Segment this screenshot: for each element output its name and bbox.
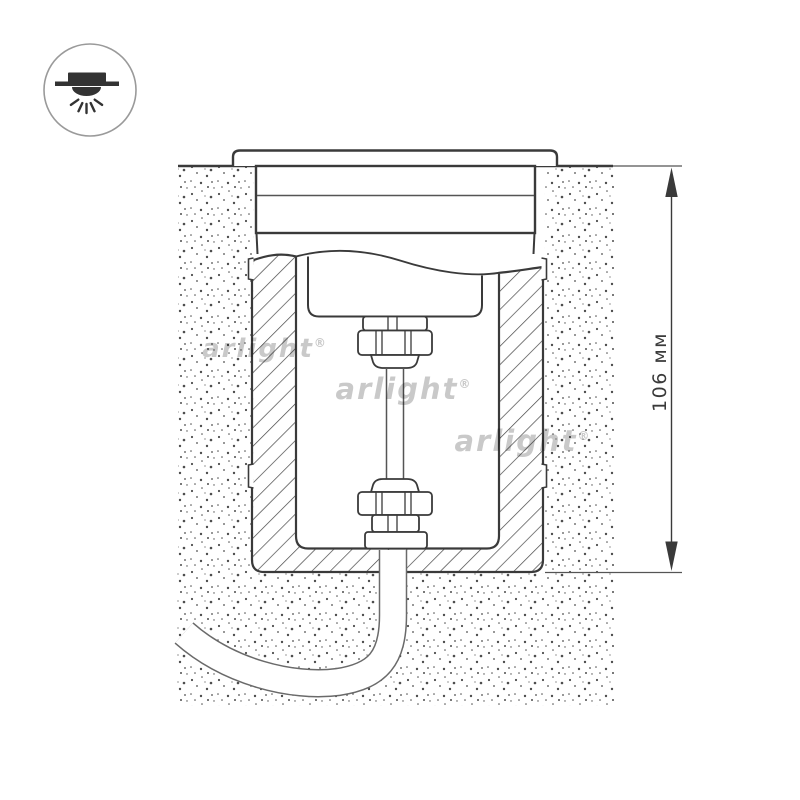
dimension-arrow-top	[665, 168, 677, 198]
soil-texture-left	[178, 167, 254, 573]
body-neck-left	[257, 233, 258, 254]
luminaire-top	[233, 151, 557, 255]
dimension: 106 мм	[649, 168, 678, 572]
soil-texture-right	[544, 167, 614, 572]
cable-gland-lower	[358, 479, 432, 549]
feature-badge	[44, 44, 136, 136]
fixture-body	[256, 166, 535, 233]
fixture-flange	[233, 151, 557, 167]
body-neck-right	[534, 233, 535, 254]
watermark-2: arlight®	[335, 372, 472, 406]
cable-gland-upper	[358, 317, 432, 369]
installation-diagram: arlight® arlight® arlight® 106 мм	[0, 0, 800, 800]
watermark-3: arlight®	[454, 424, 591, 458]
dimension-arrow-bottom	[665, 542, 677, 572]
dimension-label: 106 мм	[649, 332, 671, 412]
lamp-housing	[308, 257, 482, 317]
watermark-1: arlight®	[202, 334, 328, 364]
product-drawing-canvas: arlight® arlight® arlight® 106 мм	[0, 0, 800, 800]
